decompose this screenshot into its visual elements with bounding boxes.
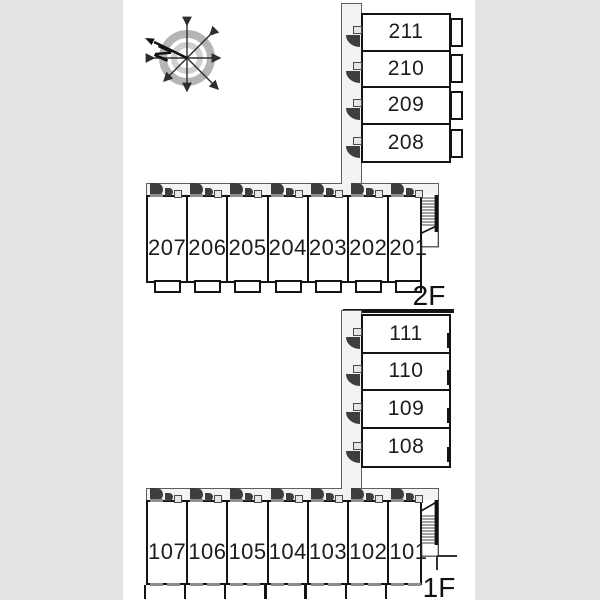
wall-stub-1f-v xyxy=(436,556,438,570)
door-swing-small-icon xyxy=(326,493,334,501)
balcony-outline xyxy=(450,129,463,158)
room-row-2f: 207 206 205 204 xyxy=(146,195,422,283)
balcony-outline xyxy=(355,280,382,293)
door-leaf-icon xyxy=(295,190,303,198)
room-number: 106 xyxy=(188,539,226,565)
room-number: 107 xyxy=(148,539,186,565)
door-leaf-icon xyxy=(415,190,423,198)
room-stack-1f: 111 110 109 108 xyxy=(361,314,451,468)
window-dash xyxy=(288,583,301,586)
floor-label-2f: 2F xyxy=(405,280,453,312)
door-leaf-icon xyxy=(375,190,383,198)
window-dash xyxy=(247,583,260,586)
door-swing-small-icon xyxy=(245,188,253,196)
wall-stub-1f-h xyxy=(437,555,457,557)
room-number: 101 xyxy=(389,539,427,565)
door-leaf-icon xyxy=(353,328,362,336)
door-threshold xyxy=(150,499,163,502)
room-109: 109 xyxy=(363,391,449,429)
window-mark xyxy=(447,370,451,385)
partition-stub xyxy=(224,585,227,599)
door-swing-small-icon xyxy=(205,188,213,196)
door-swing-small-icon xyxy=(326,188,334,196)
balcony-outline xyxy=(234,280,261,293)
partition-stub xyxy=(264,585,267,599)
room-106: 106 xyxy=(188,502,228,583)
door-leaf-icon xyxy=(415,495,423,503)
room-108: 108 xyxy=(363,429,449,467)
door-swing-small-icon xyxy=(165,188,173,196)
partition-stub xyxy=(304,585,307,599)
door-swing-small-icon xyxy=(286,493,294,501)
room-number: 109 xyxy=(388,397,425,421)
door-leaf-icon xyxy=(254,495,262,503)
balcony-outline xyxy=(450,54,463,83)
window-dash xyxy=(167,583,180,586)
door-swing-small-icon xyxy=(406,188,414,196)
room-205: 205 xyxy=(228,197,268,281)
room-number: 203 xyxy=(309,235,347,261)
room-number: 209 xyxy=(388,93,425,117)
room-103: 103 xyxy=(309,502,349,583)
room-206: 206 xyxy=(188,197,228,281)
door-leaf-icon xyxy=(353,403,362,411)
door-leaf-icon xyxy=(353,26,362,34)
partition-stub xyxy=(385,585,388,599)
door-threshold xyxy=(271,194,284,197)
door-leaf-icon xyxy=(353,99,362,107)
room-203: 203 xyxy=(309,197,349,281)
door-swing-small-icon xyxy=(366,493,374,501)
room-104: 104 xyxy=(269,502,309,583)
room-number: 108 xyxy=(388,435,425,459)
room-number: 105 xyxy=(228,539,266,565)
door-leaf-icon xyxy=(353,365,362,373)
door-leaf-icon xyxy=(174,495,182,503)
door-leaf-icon xyxy=(174,190,182,198)
floor-plan: N 211 210 209 xyxy=(0,0,600,600)
room-209: 209 xyxy=(363,88,449,125)
door-threshold xyxy=(190,499,203,502)
door-threshold xyxy=(311,499,324,502)
window-dash xyxy=(150,583,163,586)
room-107: 107 xyxy=(148,502,188,583)
room-number: 202 xyxy=(349,235,387,261)
door-swing-small-icon xyxy=(165,493,173,501)
room-number: 102 xyxy=(349,539,387,565)
room-101: 101 xyxy=(389,502,427,583)
balcony-outline xyxy=(194,280,221,293)
room-102: 102 xyxy=(349,502,389,583)
room-111: 111 xyxy=(363,316,449,354)
door-threshold xyxy=(351,194,364,197)
door-swing-small-icon xyxy=(286,188,294,196)
door-threshold xyxy=(391,194,404,197)
window-dash xyxy=(230,583,243,586)
door-swing-small-icon xyxy=(366,188,374,196)
door-threshold xyxy=(190,194,203,197)
partition-stub xyxy=(345,585,348,599)
room-207: 207 xyxy=(148,197,188,281)
balcony-outline xyxy=(450,18,463,47)
door-threshold xyxy=(311,194,324,197)
door-leaf-icon xyxy=(335,495,343,503)
balcony-outline xyxy=(275,280,302,293)
room-number: 207 xyxy=(148,235,186,261)
room-number: 210 xyxy=(388,57,425,81)
room-number: 110 xyxy=(389,359,424,383)
window-dash xyxy=(271,583,284,586)
compass-icon: N xyxy=(130,10,242,106)
door-leaf-icon xyxy=(295,495,303,503)
window-dash xyxy=(190,583,203,586)
door-threshold xyxy=(230,194,243,197)
window-dash xyxy=(391,583,404,586)
room-number: 204 xyxy=(269,235,307,261)
floor-label-1f: 1F xyxy=(415,572,463,600)
room-number: 206 xyxy=(188,235,226,261)
door-threshold xyxy=(230,499,243,502)
door-swing-small-icon xyxy=(406,493,414,501)
window-dash xyxy=(351,583,364,586)
balcony-outline xyxy=(154,280,181,293)
room-201: 201 xyxy=(389,197,427,281)
window-dash xyxy=(368,583,381,586)
room-number: 208 xyxy=(388,131,425,155)
room-211: 211 xyxy=(363,15,449,52)
door-swing-small-icon xyxy=(205,493,213,501)
door-leaf-icon xyxy=(214,495,222,503)
room-number: 205 xyxy=(228,235,266,261)
room-row-1f: 107 106 105 xyxy=(146,500,422,585)
door-leaf-icon xyxy=(214,190,222,198)
window-dash xyxy=(311,583,324,586)
window-mark xyxy=(447,408,451,423)
window-mark xyxy=(447,333,451,348)
door-swing-small-icon xyxy=(245,493,253,501)
door-threshold xyxy=(351,499,364,502)
room-202: 202 xyxy=(349,197,389,281)
door-leaf-icon xyxy=(353,62,362,70)
room-number: 211 xyxy=(389,20,424,44)
partition-stub xyxy=(184,585,187,599)
partition-stub xyxy=(144,585,147,599)
balcony-outline xyxy=(450,91,463,120)
room-stack-2f: 211 210 209 208 xyxy=(361,13,451,163)
room-110: 110 xyxy=(363,354,449,392)
door-threshold xyxy=(150,194,163,197)
door-threshold xyxy=(271,499,284,502)
room-208: 208 xyxy=(363,125,449,162)
door-leaf-icon xyxy=(254,190,262,198)
room-210: 210 xyxy=(363,52,449,89)
door-leaf-icon xyxy=(375,495,383,503)
balcony-outline xyxy=(315,280,342,293)
door-threshold xyxy=(391,499,404,502)
room-number: 104 xyxy=(269,539,307,565)
room-number: 111 xyxy=(389,322,422,346)
room-number: 103 xyxy=(309,539,347,565)
room-number: 201 xyxy=(389,235,427,261)
room-105: 105 xyxy=(228,502,268,583)
window-dash xyxy=(207,583,220,586)
door-leaf-icon xyxy=(353,137,362,145)
door-leaf-icon xyxy=(335,190,343,198)
room-204: 204 xyxy=(269,197,309,281)
window-mark xyxy=(447,447,451,462)
door-leaf-icon xyxy=(353,442,362,450)
window-dash xyxy=(328,583,341,586)
